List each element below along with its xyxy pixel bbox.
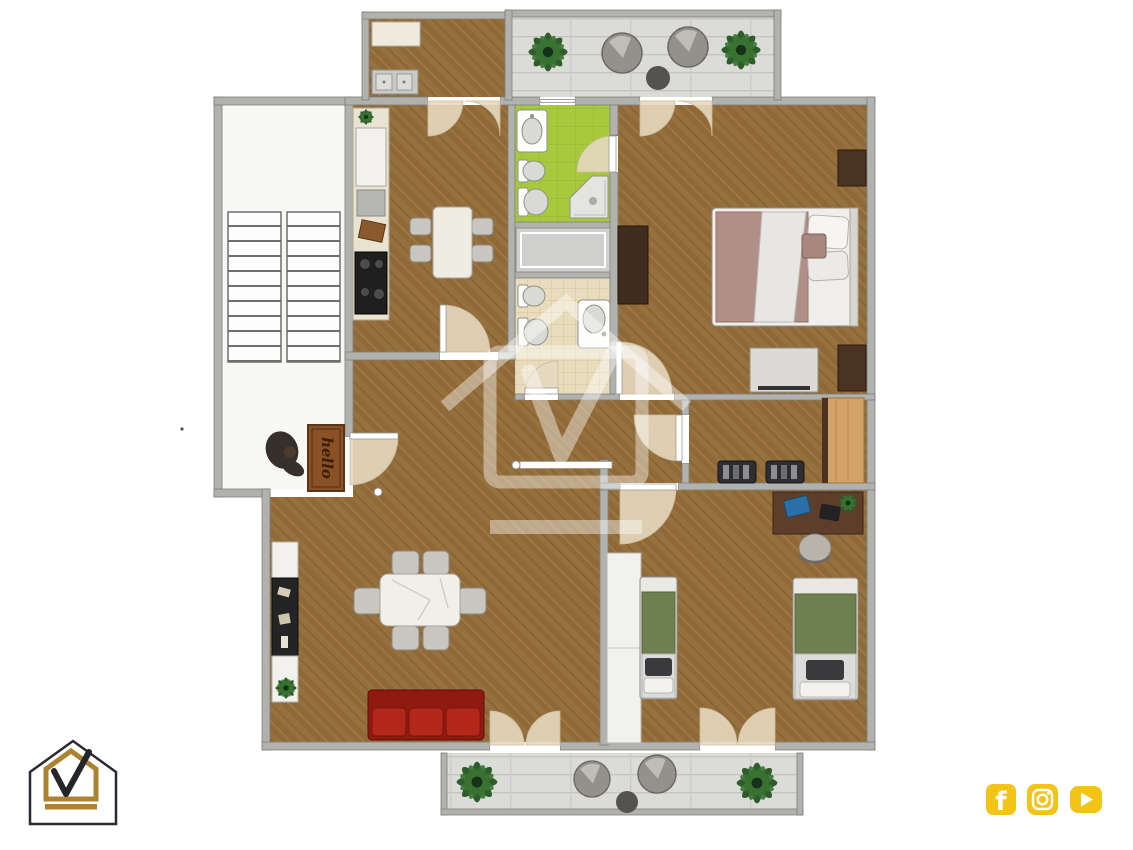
terrace-lounge-chair-1 [602, 33, 642, 73]
shoe-bench-2 [766, 461, 804, 483]
utility-counter [372, 22, 420, 46]
tan-wardrobe [822, 398, 864, 483]
nightstand-top [838, 150, 866, 186]
hello-mat-text: hello [318, 437, 336, 479]
toilet [518, 188, 548, 216]
bidet [518, 160, 545, 182]
double-bed [712, 208, 858, 326]
desk-plant [839, 494, 858, 513]
terrace-plant-left [528, 32, 567, 71]
hall-door-pivot-dot [512, 461, 520, 469]
kitchen-plant [358, 109, 373, 124]
dining-table [380, 574, 460, 626]
floor-plan-page: hello [0, 0, 1133, 850]
terrace-lounge-chair-2 [668, 27, 708, 67]
kitchen-table [433, 207, 472, 278]
hello-doormat: hello [308, 425, 344, 491]
balcony-plant-right [737, 763, 778, 804]
balcony-plant-left [457, 762, 498, 803]
washbasin [517, 110, 547, 152]
tv-dresser [750, 348, 818, 392]
white-wardrobe [607, 553, 641, 743]
single-bed-right [793, 578, 858, 700]
bidet-2 [518, 285, 545, 307]
speck [180, 427, 183, 430]
hall-open-door-leaf [520, 462, 612, 469]
desk [773, 492, 863, 534]
instagram-icon[interactable] [1027, 784, 1058, 815]
logo-underline-bar [45, 804, 97, 810]
nightstand-bottom [838, 345, 866, 391]
terrace-side-table [646, 66, 670, 90]
svg-text:f: f [995, 787, 1007, 817]
fridge [356, 128, 386, 186]
social-bar: f [986, 784, 1102, 817]
desk-chair [799, 534, 831, 562]
youtube-icon[interactable] [1070, 786, 1102, 813]
single-bed-left [640, 577, 677, 699]
bathroom-window [540, 97, 575, 105]
white-cabinet [272, 542, 298, 578]
red-sofa [368, 690, 484, 740]
floor-plan-render: hello [0, 0, 1133, 850]
balcony-lounge-chair-1 [574, 761, 610, 797]
door-pivot-dot [374, 488, 382, 496]
hall-wardrobe [516, 228, 610, 272]
kitchen-appliance [357, 190, 385, 216]
balcony-lounge-chair-2 [638, 755, 676, 793]
balcony-side-table [616, 791, 638, 813]
terrace-plant-right [721, 30, 760, 69]
shoe-bench-1 [718, 461, 756, 483]
facebook-icon[interactable]: f [986, 784, 1016, 817]
utility-sink [372, 70, 418, 94]
living-plant [275, 677, 296, 698]
cooktop [355, 252, 387, 314]
house-checkmark-logo [30, 741, 116, 824]
master-wardrobe [618, 226, 648, 304]
